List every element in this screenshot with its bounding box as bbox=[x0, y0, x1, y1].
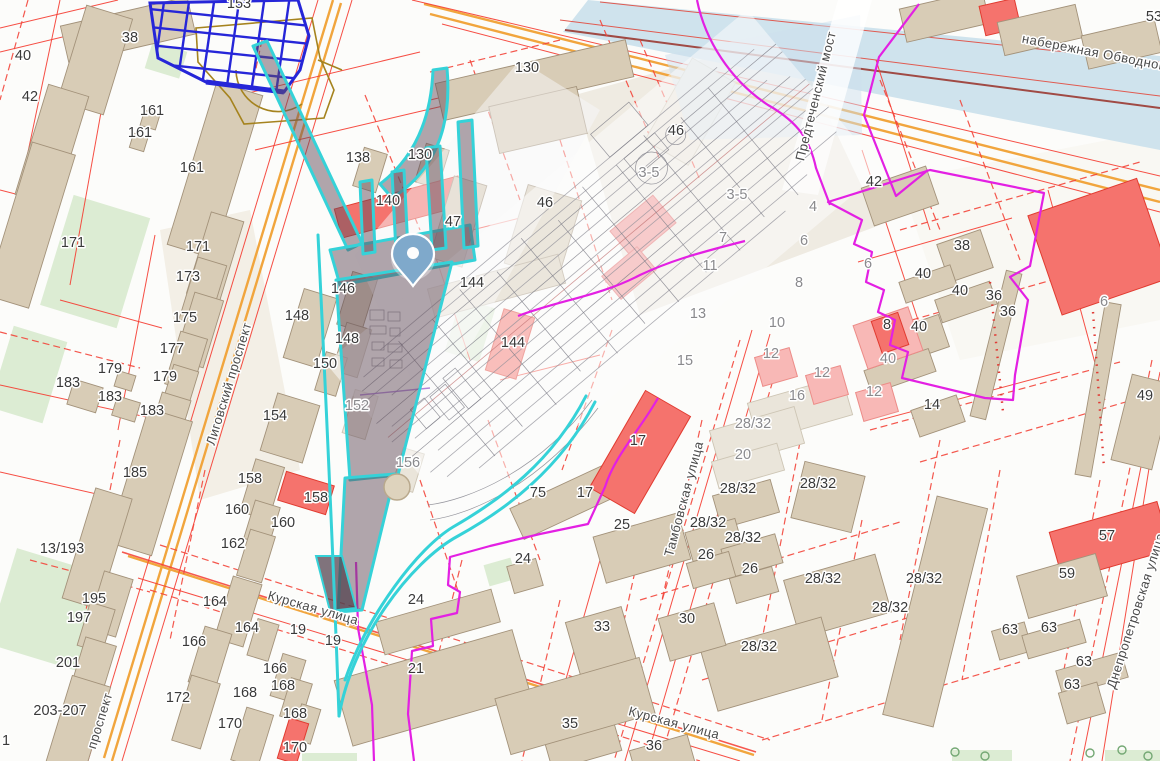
house-number-label: 28/32 bbox=[906, 571, 942, 587]
house-number-label: 177 bbox=[160, 341, 184, 357]
house-number-label: 171 bbox=[61, 235, 85, 251]
house-number-label: 1 bbox=[2, 733, 10, 749]
house-number-label: 46 bbox=[668, 123, 684, 139]
house-number-label: 12 bbox=[814, 365, 830, 381]
house-number-label: 14 bbox=[924, 397, 940, 413]
house-number-label: 40 bbox=[915, 266, 931, 282]
house-number-label: 173 bbox=[176, 269, 200, 285]
house-number-label: 140 bbox=[376, 193, 400, 209]
house-number-label: 144 bbox=[460, 275, 484, 291]
house-number-label: 26 bbox=[742, 561, 758, 577]
house-number-label: 164 bbox=[235, 620, 259, 636]
house-number-label: 160 bbox=[225, 502, 249, 518]
house-number-label: 36 bbox=[986, 288, 1002, 304]
house-number-label: 53 bbox=[1146, 9, 1160, 25]
house-number-label: 19 bbox=[290, 622, 306, 638]
house-number-label: 63 bbox=[1041, 620, 1057, 636]
house-number-label: 8 bbox=[883, 317, 891, 333]
house-number-label: 63 bbox=[1076, 654, 1092, 670]
house-number-label: 59 bbox=[1059, 566, 1075, 582]
house-number-label: 166 bbox=[182, 634, 206, 650]
house-number-label: 12 bbox=[763, 346, 779, 362]
house-number-label: 57 bbox=[1099, 528, 1115, 544]
house-number-label: 130 bbox=[515, 60, 539, 76]
house-number-label: 168 bbox=[283, 706, 307, 722]
house-number-label: 197 bbox=[67, 610, 91, 626]
house-number-label: 144 bbox=[501, 335, 525, 351]
house-number-label: 17 bbox=[630, 433, 646, 449]
house-number-label: 201 bbox=[56, 655, 80, 671]
house-number-label: 28/32 bbox=[805, 571, 841, 587]
house-number-label: 152 bbox=[345, 398, 369, 414]
house-number-label: 170 bbox=[218, 716, 242, 732]
house-number-label: 25 bbox=[614, 517, 630, 533]
house-number-label: 28/32 bbox=[872, 600, 908, 616]
house-number-label: 28/32 bbox=[725, 530, 761, 546]
house-number-label: 162 bbox=[221, 536, 245, 552]
house-number-label: 3-5 bbox=[639, 165, 660, 181]
house-number-label: 24 bbox=[408, 592, 424, 608]
house-number-label: 28/32 bbox=[735, 416, 771, 432]
house-number-label: 30 bbox=[679, 611, 695, 627]
house-number-label: 195 bbox=[82, 591, 106, 607]
house-number-label: 15 bbox=[677, 353, 693, 369]
house-number-label: 164 bbox=[203, 594, 227, 610]
house-number-label: 36 bbox=[646, 738, 662, 754]
house-number-label: 6 bbox=[800, 233, 808, 249]
house-number-label: 42 bbox=[22, 89, 38, 105]
house-number-label: 150 bbox=[313, 356, 337, 372]
house-number-label: 138 bbox=[346, 150, 370, 166]
map-canvas[interactable]: Лиговский проспектпроспектКурская улицаК… bbox=[0, 0, 1160, 761]
house-number-label: 28/32 bbox=[800, 476, 836, 492]
house-number-label: 161 bbox=[180, 160, 204, 176]
house-number-label: 49 bbox=[1137, 388, 1153, 404]
house-number-label: 161 bbox=[140, 103, 164, 119]
house-number-label: 7 bbox=[719, 230, 727, 246]
house-number-label: 158 bbox=[238, 471, 262, 487]
house-number-label: 3-5 bbox=[727, 187, 748, 203]
house-number-label: 40 bbox=[911, 319, 927, 335]
house-number-label: 40 bbox=[880, 351, 896, 367]
house-number-label: 63 bbox=[1002, 622, 1018, 638]
house-number-label: 46 bbox=[537, 195, 553, 211]
house-number-label: 13 bbox=[690, 306, 706, 322]
house-number-label: 38 bbox=[954, 238, 970, 254]
house-number-label: 170 bbox=[283, 740, 307, 756]
house-number-label: 175 bbox=[173, 310, 197, 326]
house-number-label: 158 bbox=[304, 490, 328, 506]
house-number-label: 183 bbox=[98, 389, 122, 405]
house-number-label: 148 bbox=[285, 308, 309, 324]
house-number-label: 154 bbox=[263, 408, 287, 424]
house-number-label: 13/193 bbox=[40, 541, 84, 557]
house-number-label: 185 bbox=[123, 465, 147, 481]
house-number-label: 36 bbox=[1000, 304, 1016, 320]
house-number-label: 168 bbox=[271, 678, 295, 694]
house-number-label: 179 bbox=[153, 369, 177, 385]
house-number-label: 130 bbox=[408, 147, 432, 163]
house-number-label: 179 bbox=[98, 361, 122, 377]
house-number-label: 47 bbox=[445, 214, 461, 230]
house-number-label: 203-207 bbox=[33, 703, 86, 719]
house-number-label: 19 bbox=[325, 633, 341, 649]
house-number-label: 4 bbox=[809, 199, 817, 215]
house-number-label: 20 bbox=[735, 447, 751, 463]
house-number-label: 168 bbox=[233, 685, 257, 701]
house-number-label: 12 bbox=[866, 384, 882, 400]
house-number-label: 160 bbox=[271, 515, 295, 531]
house-number-label: 172 bbox=[166, 690, 190, 706]
house-number-label: 8 bbox=[795, 275, 803, 291]
house-number-label: 10 bbox=[769, 315, 785, 331]
house-number-label: 166 bbox=[263, 661, 287, 677]
house-number-label: 24 bbox=[515, 551, 531, 567]
house-number-label: 183 bbox=[140, 403, 164, 419]
house-number-label: 28/32 bbox=[741, 639, 777, 655]
house-number-label: 40 bbox=[952, 283, 968, 299]
house-number-label: 38 bbox=[122, 30, 138, 46]
house-number-label: 153 bbox=[227, 0, 251, 12]
house-number-label: 156 bbox=[396, 455, 420, 471]
house-number-label: 26 bbox=[698, 547, 714, 563]
house-number-label: 161 bbox=[128, 125, 152, 141]
house-number-label: 28/32 bbox=[690, 515, 726, 531]
house-number-label: 6 bbox=[1100, 294, 1108, 310]
house-number-label: 21 bbox=[408, 661, 424, 677]
house-number-label: 63 bbox=[1064, 677, 1080, 693]
house-number-label: 35 bbox=[562, 716, 578, 732]
house-number-label: 42 bbox=[866, 174, 882, 190]
house-number-label: 40 bbox=[15, 48, 31, 64]
house-number-label: 17 bbox=[577, 485, 593, 501]
house-number-label: 75 bbox=[530, 485, 546, 501]
house-number-label: 146 bbox=[331, 281, 355, 297]
house-number-label: 28/32 bbox=[720, 481, 756, 497]
house-number-label: 183 bbox=[56, 375, 80, 391]
house-number-label: 33 bbox=[594, 619, 610, 635]
house-number-label: 171 bbox=[186, 239, 210, 255]
house-number-label: 16 bbox=[789, 388, 805, 404]
house-number-label: 6 bbox=[864, 256, 872, 272]
house-number-label: 148 bbox=[335, 331, 359, 347]
house-number-label: 11 bbox=[702, 258, 717, 274]
